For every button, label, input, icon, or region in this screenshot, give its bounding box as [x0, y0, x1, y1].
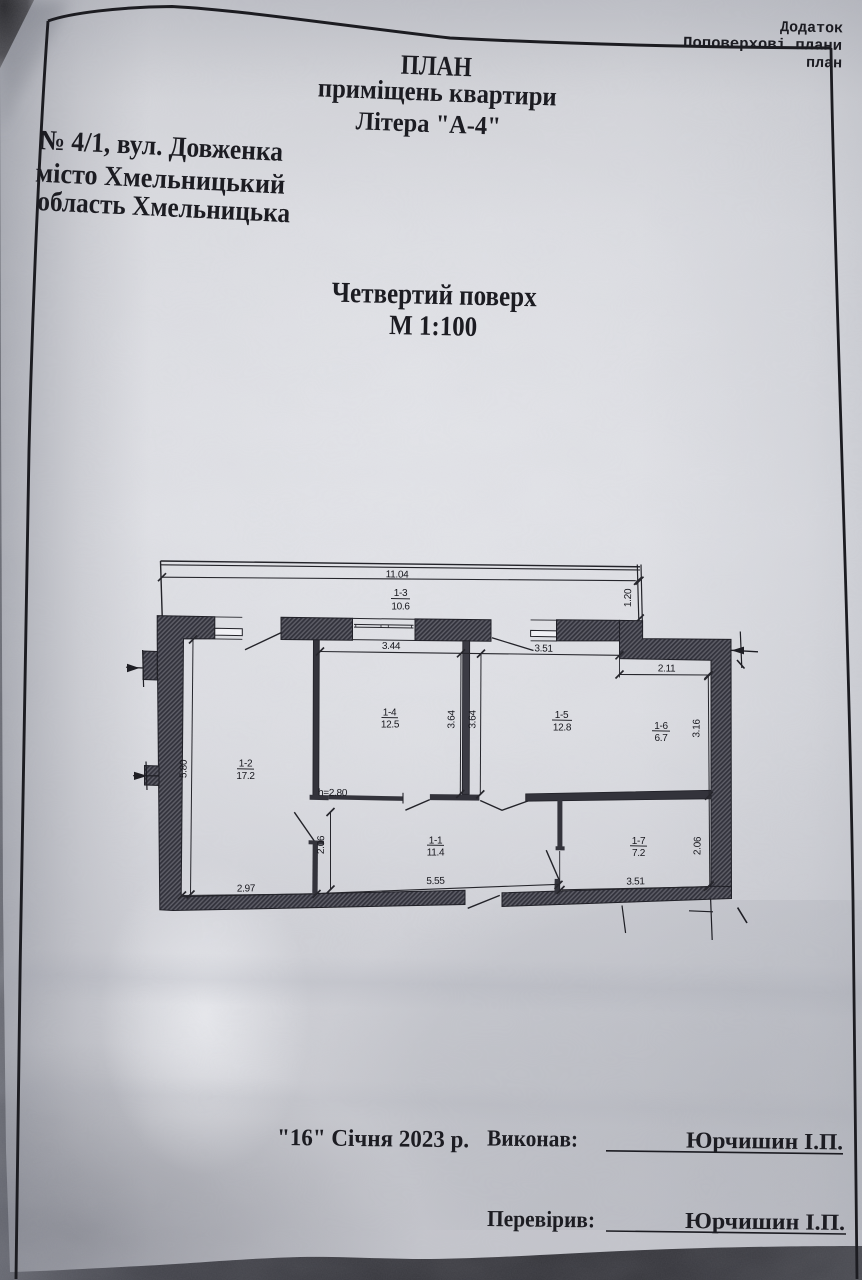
svg-text:1.20: 1.20 [623, 588, 634, 607]
svg-text:5.80: 5.80 [178, 759, 189, 778]
svg-text:3.51: 3.51 [626, 876, 645, 887]
svg-text:3.16: 3.16 [691, 718, 702, 737]
svg-text:1-4: 1-4 [383, 708, 397, 719]
svg-text:Юрчишин І.П.: Юрчишин І.П. [685, 1208, 845, 1235]
svg-text:11.04: 11.04 [386, 569, 410, 580]
svg-text:10.6: 10.6 [391, 602, 410, 613]
svg-text:7.2: 7.2 [632, 848, 646, 859]
svg-text:Поповерхові плани: Поповерхові плани [683, 35, 842, 55]
svg-text:Четвертий поверх: Четвертий поверх [331, 277, 537, 314]
svg-text:М 1:100: М 1:100 [389, 310, 478, 343]
svg-text:h=2.80: h=2.80 [318, 788, 348, 800]
svg-text:Юрчишин І.П.: Юрчишин І.П. [686, 1128, 843, 1155]
svg-text:6.7: 6.7 [654, 733, 668, 744]
svg-text:2.11: 2.11 [658, 663, 676, 674]
svg-text:план: план [806, 55, 842, 73]
svg-text:3.51: 3.51 [534, 643, 553, 654]
svg-text:1-5: 1-5 [555, 710, 569, 721]
svg-text:11.4: 11.4 [427, 848, 445, 859]
svg-text:1-3: 1-3 [394, 588, 408, 599]
svg-text:12.5: 12.5 [381, 720, 400, 731]
svg-text:2.06: 2.06 [692, 836, 703, 855]
svg-text:17.2: 17.2 [236, 771, 255, 782]
svg-text:Додаток: Додаток [780, 19, 843, 37]
svg-text:3.44: 3.44 [382, 641, 401, 652]
svg-text:3.64: 3.64 [446, 709, 457, 728]
svg-text:3.64: 3.64 [467, 709, 478, 728]
svg-text:2.06: 2.06 [316, 835, 327, 854]
svg-text:12.8: 12.8 [553, 723, 572, 734]
svg-text:"16" Січня 2023 р.: "16" Січня 2023 р. [277, 1125, 469, 1153]
svg-text:1-6: 1-6 [654, 721, 668, 732]
svg-text:2.97: 2.97 [237, 883, 256, 894]
svg-text:Виконав:: Виконав: [487, 1126, 578, 1152]
svg-text:1-7: 1-7 [632, 836, 646, 847]
svg-text:1-2: 1-2 [239, 759, 253, 770]
svg-text:Перевірив:: Перевірив: [487, 1206, 595, 1232]
svg-text:5.55: 5.55 [426, 876, 445, 887]
svg-text:Літера "А-4": Літера "А-4" [355, 106, 501, 141]
